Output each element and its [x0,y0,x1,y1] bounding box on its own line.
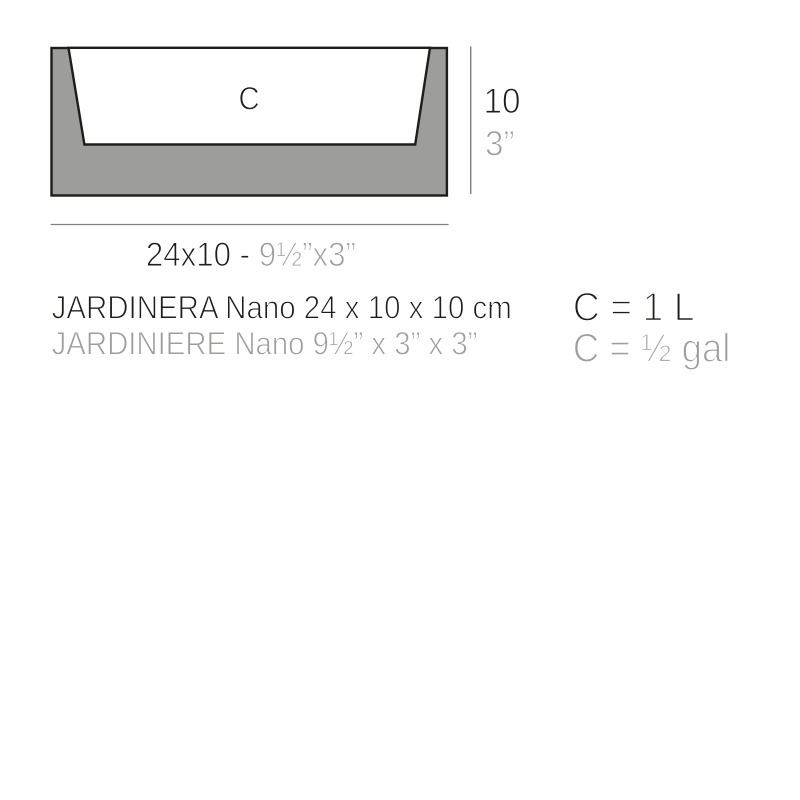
svg-text:C: C [238,80,259,117]
svg-text:JARDINERA Nano 24 x 10 x 10 cm: JARDINERA Nano 24 x 10 x 10 cm [52,289,512,326]
svg-text:24x10 - 9½”x3”: 24x10 - 9½”x3” [146,235,356,274]
svg-text:3”: 3” [485,125,515,164]
svg-text:10: 10 [484,82,521,121]
svg-text:C = 1 L: C = 1 L [573,285,695,329]
svg-text:JARDINIERE Nano 9½” x 3” x 3”: JARDINIERE Nano 9½” x 3” x 3” [52,325,478,362]
svg-text:C = ½ gal: C = ½ gal [573,326,731,371]
